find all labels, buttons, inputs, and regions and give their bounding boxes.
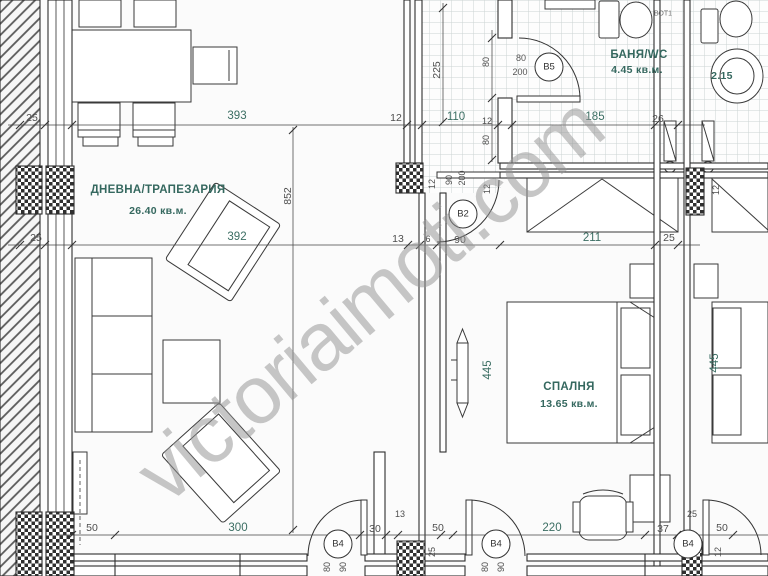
dim-mid-90: 90 — [454, 234, 466, 246]
dim-top-25: 25 — [26, 112, 38, 124]
dim-mid-6: 6 — [425, 234, 430, 244]
door-label-b4-right: В4 — [482, 530, 511, 559]
dim-80a: 80 — [481, 57, 491, 67]
dim-bot-50a: 50 — [86, 522, 98, 534]
door-label-b4-left-text: В4 — [332, 539, 344, 550]
dim-b4l-80: 80 — [322, 562, 332, 572]
dim-852: 852 — [282, 187, 294, 205]
fixture-note: ВОТ1 — [654, 11, 672, 18]
dim-mid-211: 211 — [583, 232, 601, 244]
dim-bot-30: 30 — [369, 523, 381, 535]
dim-80b: 80 — [481, 135, 491, 145]
door-label-b4-adjacent: В4 — [674, 530, 703, 559]
dim-mid-25a: 25 — [30, 232, 42, 244]
dim-bot-13: 13 — [395, 509, 405, 519]
door-b5-height: 200 — [512, 67, 527, 77]
room-area-bedroom: 13.65 кв.м. — [540, 398, 598, 410]
dim-bot-300: 300 — [228, 522, 247, 534]
dim-b2-width: 90 — [444, 175, 454, 185]
door-label-b2: В2 — [449, 200, 478, 229]
dim-b4r-80: 80 — [480, 562, 490, 572]
dim-b2-height: 200 — [457, 170, 467, 185]
dim-top-12b: 12 — [482, 116, 492, 126]
dim-bot-37: 37 — [657, 523, 669, 535]
room-area-bathroom: 4.45 кв.м. — [611, 64, 663, 76]
door-label-b2-text: В2 — [457, 209, 469, 220]
room-label-bedroom: СПАЛНЯ — [543, 381, 594, 393]
door-label-b5: В5 — [535, 53, 564, 82]
room-label-living: ДНЕВНА/ТРАПЕЗАРИЯ — [91, 184, 226, 196]
dim-bot-50c: 50 — [716, 522, 728, 534]
room-area-adjacent-wc: 2.15 — [711, 70, 733, 82]
dim-b2-wall-l: 12 — [427, 179, 437, 189]
dim-12-bottom: 12 — [713, 547, 723, 557]
dim-top-393: 393 — [227, 110, 246, 122]
dim-445-b: 445 — [709, 353, 721, 372]
dim-top-12a: 12 — [390, 112, 402, 124]
dim-225: 225 — [431, 61, 443, 79]
dim-mid-13: 13 — [392, 233, 404, 245]
dim-b4r-90: 90 — [496, 562, 506, 572]
floor-plan: 25 393 12 110 12 185 26 25 392 13 6 90 2… — [0, 0, 768, 576]
dim-mid-25b: 25 — [663, 232, 675, 244]
dim-445-a: 445 — [482, 360, 494, 379]
room-area-living: 26.40 кв.м. — [129, 205, 187, 217]
dim-top-26: 26 — [652, 113, 664, 125]
door-label-b4-adjacent-text: В4 — [682, 539, 694, 550]
door-label-b4-right-text: В4 — [490, 539, 502, 550]
dim-25-col: 25 — [427, 547, 437, 557]
door-label-b5-text: В5 — [543, 62, 555, 73]
dim-b2-wall-r: 12 — [482, 184, 492, 194]
door-b5-width: 80 — [516, 53, 526, 63]
room-label-bathroom: БАНЯ/WC — [610, 49, 667, 61]
dim-top-185: 185 — [585, 111, 604, 123]
door-label-b4-left: В4 — [324, 530, 353, 559]
dim-12-right: 12 — [711, 185, 721, 195]
dim-bot-220: 220 — [542, 522, 561, 534]
floor-plan-drawing — [0, 0, 768, 576]
dim-bot-50b: 50 — [432, 522, 444, 534]
dim-bot-25: 25 — [687, 509, 697, 519]
dim-b4l-90: 90 — [338, 562, 348, 572]
dim-mid-392: 392 — [227, 231, 246, 243]
dim-top-110: 110 — [447, 111, 465, 123]
